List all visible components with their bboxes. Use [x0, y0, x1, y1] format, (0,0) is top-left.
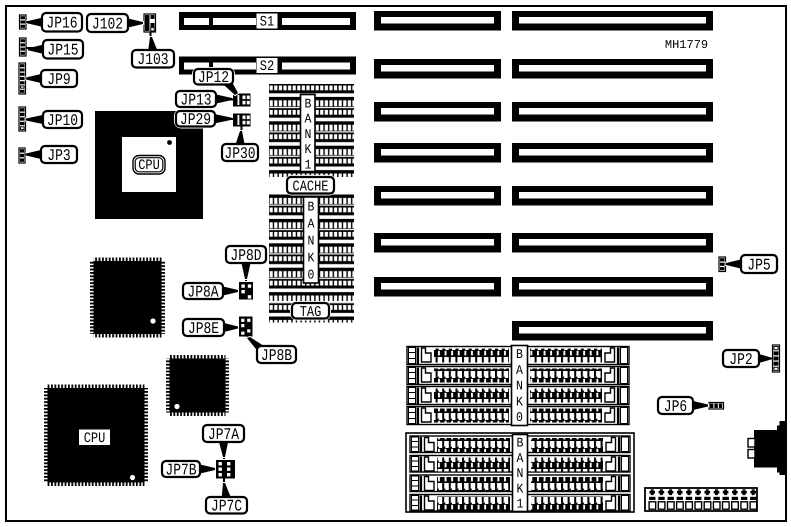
svg-text:JP3: JP3	[47, 146, 70, 165]
svg-text:A: A	[517, 451, 524, 466]
svg-text:JP12: JP12	[198, 68, 229, 87]
svg-text:K: K	[305, 143, 312, 158]
svg-text:A: A	[305, 112, 312, 127]
svg-text:N: N	[516, 379, 523, 394]
svg-text:JP8E: JP8E	[188, 319, 219, 338]
svg-text:JP9: JP9	[47, 70, 70, 89]
svg-text:JP8A: JP8A	[187, 283, 218, 302]
svg-text:B: B	[516, 348, 523, 363]
svg-text:JP5: JP5	[747, 256, 770, 275]
svg-text:N: N	[517, 467, 524, 482]
svg-text:JP7A: JP7A	[208, 425, 239, 444]
svg-text:JP2: JP2	[729, 350, 752, 369]
svg-text:TAG: TAG	[300, 304, 322, 322]
svg-text:N: N	[305, 128, 312, 143]
svg-text:JP10: JP10	[47, 111, 78, 130]
svg-text:JP6: JP6	[664, 397, 687, 416]
svg-text:CPU: CPU	[138, 157, 160, 174]
svg-text:JP30: JP30	[224, 144, 255, 163]
svg-text:0: 0	[308, 268, 315, 283]
svg-text:1: 1	[305, 158, 312, 173]
svg-text:JP7B: JP7B	[165, 461, 196, 480]
svg-text:B: B	[305, 97, 312, 112]
svg-text:S2: S2	[260, 58, 274, 75]
svg-text:J102: J102	[92, 15, 123, 34]
svg-text:B: B	[308, 200, 315, 215]
svg-text:A: A	[308, 217, 315, 232]
svg-text:K: K	[517, 482, 524, 497]
svg-text:S1: S1	[260, 14, 274, 31]
svg-text:JP7C: JP7C	[211, 497, 242, 516]
svg-text:1: 1	[517, 497, 524, 512]
svg-text:JP13: JP13	[180, 91, 211, 110]
svg-text:JP8D: JP8D	[230, 246, 261, 265]
svg-text:A: A	[516, 363, 523, 378]
svg-text:CPU: CPU	[84, 430, 106, 447]
svg-text:JP29: JP29	[180, 110, 211, 129]
svg-text:K: K	[308, 251, 315, 266]
svg-text:JP8B: JP8B	[261, 346, 292, 365]
svg-text:B: B	[517, 436, 524, 451]
svg-text:MH1779: MH1779	[665, 38, 708, 52]
svg-text:JP16: JP16	[46, 14, 77, 33]
svg-text:K: K	[516, 395, 523, 410]
svg-text:JP15: JP15	[47, 41, 78, 60]
svg-text:N: N	[308, 234, 315, 249]
svg-text:J103: J103	[137, 50, 168, 69]
svg-text:CACHE: CACHE	[292, 178, 328, 196]
svg-text:0: 0	[516, 411, 523, 426]
